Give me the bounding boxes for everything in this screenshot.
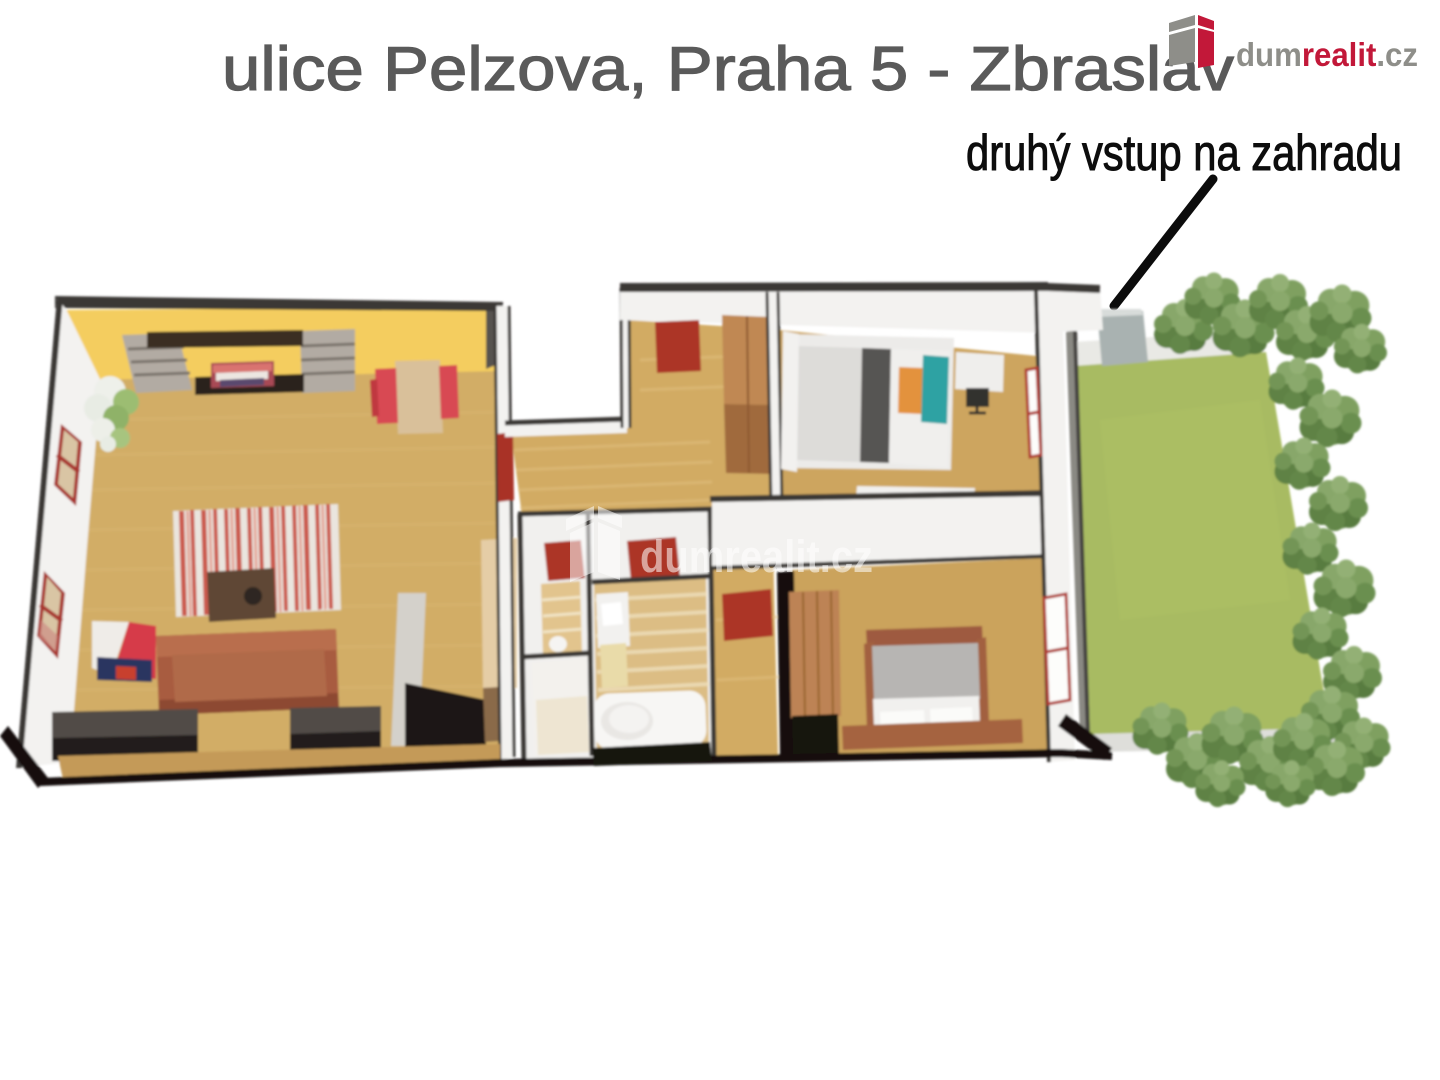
svg-text:druhý vstup na zahradu: druhý vstup na zahradu bbox=[966, 125, 1402, 181]
svg-text:dumrealit.cz: dumrealit.cz bbox=[1236, 36, 1418, 73]
svg-text:ulice Pelzova, Praha 5 - Zbras: ulice Pelzova, Praha 5 - Zbraslav bbox=[222, 35, 1234, 104]
svg-text:dumrealit.cz: dumrealit.cz bbox=[640, 531, 873, 582]
